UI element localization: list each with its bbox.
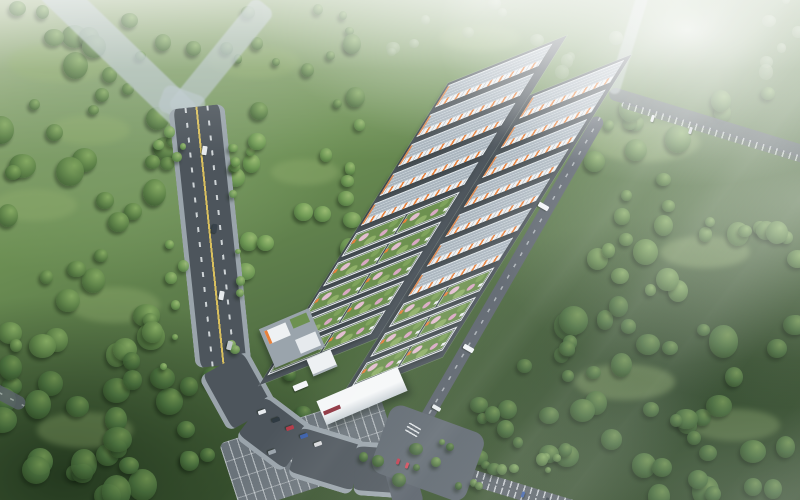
tree xyxy=(687,431,701,445)
tree xyxy=(621,190,631,201)
tree xyxy=(776,436,795,457)
tree xyxy=(648,484,669,500)
tree xyxy=(121,13,138,29)
car xyxy=(218,290,224,300)
tree xyxy=(63,52,88,79)
tree xyxy=(313,4,323,15)
tree xyxy=(619,233,633,246)
tree xyxy=(392,473,406,487)
tree xyxy=(301,63,314,77)
tree xyxy=(200,448,215,462)
tree xyxy=(767,339,786,358)
tree xyxy=(0,407,17,433)
tree xyxy=(559,443,572,457)
tree xyxy=(320,148,332,162)
tree xyxy=(339,11,347,20)
tree xyxy=(29,99,40,110)
office-roof-garden xyxy=(290,312,310,328)
tree xyxy=(128,469,157,500)
tree xyxy=(621,319,636,333)
tree xyxy=(29,334,56,358)
tree xyxy=(180,451,199,471)
tree xyxy=(345,162,356,174)
tree xyxy=(705,486,721,500)
tree xyxy=(0,355,22,380)
tree xyxy=(25,390,51,419)
tree xyxy=(614,208,629,224)
tree xyxy=(143,179,167,206)
tree xyxy=(156,388,183,415)
tree xyxy=(705,217,715,227)
tree xyxy=(46,124,63,141)
tree xyxy=(177,421,195,438)
tree xyxy=(172,334,178,340)
tree xyxy=(240,232,257,251)
tree xyxy=(792,26,800,37)
tree xyxy=(625,139,647,161)
tree xyxy=(782,0,790,4)
tree xyxy=(662,200,675,212)
tree xyxy=(165,240,174,249)
car xyxy=(201,145,207,155)
tree xyxy=(584,151,605,172)
tree xyxy=(236,276,245,285)
tree xyxy=(570,399,595,422)
tree xyxy=(559,306,588,335)
tree xyxy=(186,41,201,55)
grass-patch xyxy=(440,25,520,51)
tree xyxy=(71,449,97,478)
tree xyxy=(108,212,129,232)
tree xyxy=(462,27,474,38)
tree xyxy=(609,296,628,317)
tree xyxy=(346,87,364,107)
tree xyxy=(709,325,738,357)
tree xyxy=(326,51,335,60)
tree xyxy=(164,126,175,138)
tree xyxy=(762,15,776,27)
tree xyxy=(0,116,14,144)
tree xyxy=(343,34,361,54)
tree xyxy=(652,458,672,477)
tree xyxy=(56,289,79,312)
tree xyxy=(228,144,238,153)
tree xyxy=(314,206,331,222)
tree xyxy=(96,192,114,208)
car xyxy=(211,223,217,233)
tree xyxy=(439,439,445,445)
tree xyxy=(697,324,710,336)
tree xyxy=(165,272,176,284)
tree xyxy=(155,34,171,51)
tree xyxy=(777,43,786,52)
tree xyxy=(513,437,523,448)
tree xyxy=(56,157,83,186)
tree xyxy=(10,339,22,352)
tree xyxy=(150,367,175,389)
tree xyxy=(153,140,164,150)
tree xyxy=(257,235,274,251)
tree xyxy=(566,52,575,62)
tree xyxy=(761,87,775,99)
tree xyxy=(498,400,517,419)
rooftop-box xyxy=(264,322,291,344)
tree xyxy=(123,352,140,369)
tree xyxy=(172,152,182,163)
tree xyxy=(662,341,678,355)
tree xyxy=(333,99,342,108)
tree xyxy=(497,464,507,475)
tree xyxy=(229,190,237,198)
tree xyxy=(539,407,559,424)
tree xyxy=(413,464,420,471)
tree xyxy=(22,456,50,484)
tree xyxy=(711,90,731,112)
tree xyxy=(485,406,500,422)
tree xyxy=(94,249,108,262)
tree xyxy=(231,157,240,166)
tree xyxy=(586,366,601,379)
tree xyxy=(699,445,717,462)
tree xyxy=(142,321,163,343)
tree xyxy=(102,475,131,500)
tree xyxy=(530,34,544,46)
tree xyxy=(103,427,131,452)
aerial-rendering xyxy=(0,0,800,500)
tree xyxy=(119,457,139,474)
tree xyxy=(766,221,788,244)
tree xyxy=(294,203,313,222)
tree xyxy=(665,125,691,153)
tree xyxy=(656,173,671,186)
tree xyxy=(498,8,507,16)
tree xyxy=(421,15,430,25)
tree xyxy=(654,215,673,236)
tree xyxy=(633,239,658,265)
tree xyxy=(36,5,49,19)
tree xyxy=(601,429,622,449)
tree xyxy=(699,227,713,241)
tree xyxy=(611,353,632,377)
tree xyxy=(40,270,53,284)
tree xyxy=(9,1,26,16)
tree xyxy=(243,154,260,172)
tree xyxy=(604,120,614,130)
tree xyxy=(88,105,99,115)
tree xyxy=(611,268,629,284)
tree xyxy=(497,420,514,438)
tree xyxy=(738,225,752,237)
tree xyxy=(517,359,532,373)
tree xyxy=(123,370,142,390)
tree xyxy=(171,300,180,310)
tree xyxy=(645,284,656,296)
tree xyxy=(180,377,197,396)
tree xyxy=(744,478,762,496)
tree xyxy=(636,334,660,355)
tree xyxy=(178,260,189,272)
tree xyxy=(455,482,462,489)
tree xyxy=(706,395,731,416)
tree xyxy=(446,443,454,451)
tree xyxy=(341,175,354,187)
truck xyxy=(292,380,308,391)
tree xyxy=(354,119,365,131)
tree xyxy=(609,31,622,45)
tree xyxy=(545,467,551,473)
tree xyxy=(248,133,265,150)
tree xyxy=(764,479,782,499)
tree xyxy=(95,88,109,103)
tree xyxy=(562,370,574,382)
tree xyxy=(387,48,395,57)
tree xyxy=(250,102,268,120)
tree xyxy=(145,155,160,169)
tree xyxy=(740,440,766,463)
tree xyxy=(536,453,548,466)
tree xyxy=(787,250,800,268)
tree xyxy=(759,64,773,80)
tree xyxy=(0,204,18,227)
tree xyxy=(643,402,660,418)
tree xyxy=(602,243,615,257)
tree xyxy=(409,39,419,48)
tree xyxy=(67,261,86,278)
tree xyxy=(509,464,519,473)
tree xyxy=(359,452,368,462)
tree xyxy=(338,191,355,207)
tree xyxy=(553,454,561,461)
tree xyxy=(235,249,241,254)
tree xyxy=(409,443,423,455)
tree xyxy=(656,268,678,291)
grass-patch xyxy=(271,159,339,185)
tree xyxy=(783,315,800,336)
tree xyxy=(725,367,744,387)
